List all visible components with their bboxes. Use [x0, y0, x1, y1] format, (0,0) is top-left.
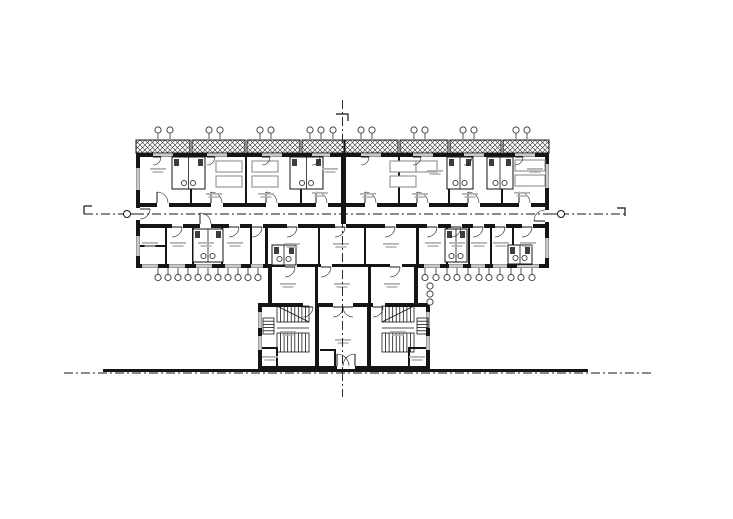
window	[471, 264, 485, 268]
room-label-mark	[262, 356, 278, 361]
vent-symbol	[427, 283, 433, 289]
vent-symbol	[529, 268, 535, 281]
door-opening	[157, 203, 169, 207]
vent-symbol	[454, 268, 460, 281]
window	[251, 264, 263, 268]
door-swing	[385, 227, 395, 237]
datum-circle	[558, 211, 565, 218]
wall	[367, 303, 371, 366]
window	[515, 153, 535, 157]
room-label-mark	[280, 283, 296, 288]
bed	[252, 161, 278, 172]
wall	[416, 228, 419, 264]
stair-flight	[263, 318, 274, 334]
vent-symbol	[427, 291, 433, 297]
room-label-mark	[334, 283, 350, 288]
fixture	[525, 247, 530, 254]
door-swing	[285, 267, 295, 277]
door-swing	[153, 157, 161, 165]
datum-circle	[124, 211, 131, 218]
bathroom-pod	[172, 157, 205, 189]
bed	[216, 176, 242, 187]
wall	[414, 264, 418, 307]
vent-symbol	[185, 268, 191, 281]
window	[169, 264, 185, 268]
vent-symbol	[444, 268, 450, 281]
centerline-bracket	[336, 114, 348, 121]
vent-symbol	[330, 127, 336, 139]
vent-symbol	[165, 268, 171, 281]
vent-symbol	[471, 127, 477, 139]
door-swing	[361, 157, 369, 165]
vent-symbol	[497, 268, 503, 281]
thin-wall-layer	[277, 306, 414, 328]
balcony-segment	[450, 140, 501, 153]
window	[493, 264, 507, 268]
vent-symbol	[318, 127, 324, 139]
window	[136, 236, 140, 256]
ground-layer	[103, 369, 588, 372]
balcony-segment	[302, 140, 344, 153]
wall	[368, 264, 371, 306]
fixture	[466, 159, 471, 166]
vent-symbol	[460, 127, 466, 139]
balcony-segment	[345, 140, 398, 153]
vent-symbol	[369, 127, 375, 139]
fixture	[195, 231, 200, 238]
window	[136, 168, 140, 190]
door-swing	[333, 307, 343, 317]
window	[258, 336, 262, 350]
room-label-mark	[170, 242, 186, 247]
door-opening	[200, 224, 211, 228]
door-opening	[468, 203, 480, 207]
wall	[165, 228, 167, 264]
fixture	[292, 159, 297, 166]
vent-symbol	[206, 127, 212, 139]
fixture	[216, 231, 221, 238]
furniture-layer	[172, 157, 545, 265]
door-opening	[417, 203, 429, 207]
vent-symbol	[255, 268, 261, 281]
door-swing	[473, 227, 483, 237]
wall	[265, 228, 268, 264]
vent-symbol	[518, 268, 524, 281]
window	[424, 264, 440, 268]
window	[258, 312, 262, 328]
room-label-mark	[335, 339, 351, 344]
door-swing	[303, 307, 313, 317]
vent-symbol	[508, 268, 514, 281]
bed	[252, 176, 278, 187]
stair-layer	[263, 306, 428, 352]
window	[312, 153, 330, 157]
room-label-mark	[206, 193, 222, 198]
fixture	[510, 247, 515, 254]
window	[545, 238, 549, 258]
fixture	[460, 231, 465, 238]
bed	[515, 175, 545, 186]
ground-line	[103, 369, 588, 372]
door-swing	[252, 227, 262, 237]
room-label-mark	[360, 193, 376, 198]
fixture	[506, 159, 511, 166]
fixture	[174, 159, 179, 166]
plan-svg	[0, 0, 733, 519]
window	[464, 153, 484, 157]
door-swing	[321, 267, 331, 277]
balcony-segment	[247, 140, 300, 153]
door-opening	[545, 210, 549, 222]
vent-symbol	[217, 127, 223, 139]
room-label-mark	[493, 242, 509, 247]
bed	[390, 176, 416, 187]
window	[225, 264, 241, 268]
window	[153, 153, 173, 157]
door-swing	[373, 307, 383, 317]
vent-symbol	[245, 268, 251, 281]
bathroom-pod	[447, 157, 473, 189]
door-swing	[390, 267, 400, 277]
centerline-bracket	[617, 208, 625, 216]
room-label-mark	[471, 242, 487, 247]
room-label-mark	[412, 193, 428, 198]
window	[449, 264, 463, 268]
room-label-mark	[312, 192, 328, 197]
vent-symbol	[422, 268, 428, 281]
stair-flight	[277, 333, 309, 352]
vent-symbol	[167, 127, 173, 139]
vent-symbol	[257, 127, 263, 139]
door-swing	[522, 227, 532, 237]
balcony-segment	[192, 140, 245, 153]
fixture	[289, 247, 294, 254]
vent-symbol	[225, 268, 231, 281]
bed	[390, 161, 416, 172]
vent-symbol	[358, 127, 364, 139]
wall	[468, 228, 470, 264]
fixture	[198, 159, 203, 166]
vent-symbol	[215, 268, 221, 281]
vent-symbol	[205, 268, 211, 281]
bed	[216, 161, 242, 172]
vent-symbol	[422, 127, 428, 139]
vent-symbol	[268, 127, 274, 139]
fixture	[274, 247, 279, 254]
vent-symbol	[433, 268, 439, 281]
wall	[490, 228, 492, 264]
vent-symbol	[513, 127, 519, 139]
window	[142, 264, 158, 268]
window	[262, 153, 282, 157]
door-opening	[365, 203, 377, 207]
wall	[268, 264, 272, 307]
bathroom-pod	[272, 245, 296, 265]
door-swing	[495, 227, 505, 237]
wall	[245, 157, 247, 203]
vent-symbol	[235, 268, 241, 281]
vent-symbol	[307, 127, 313, 139]
thin-wall	[277, 306, 309, 322]
wall	[250, 228, 252, 264]
vent-symbol	[155, 268, 161, 281]
fixture	[489, 159, 494, 166]
door-swing	[534, 210, 545, 221]
door-swing	[229, 227, 239, 237]
door-swing	[427, 227, 437, 237]
door-swing	[172, 227, 182, 237]
wall	[334, 349, 336, 366]
door-swing	[207, 157, 215, 165]
wall	[320, 349, 336, 351]
vent-symbol	[155, 127, 161, 139]
window	[413, 153, 433, 157]
window	[426, 336, 430, 350]
vent-symbol	[427, 299, 433, 305]
thin-wall	[382, 306, 414, 322]
door-swing	[335, 227, 345, 237]
window	[517, 264, 539, 268]
room-label-mark	[333, 243, 349, 248]
wall	[315, 303, 319, 366]
wall	[315, 264, 318, 306]
bathroom-pod	[487, 157, 513, 189]
balcony-segment	[503, 140, 549, 153]
window	[545, 164, 549, 188]
wall	[364, 228, 366, 264]
room-label-mark	[322, 168, 338, 173]
door-swing	[343, 307, 353, 317]
vent-symbol	[411, 127, 417, 139]
vent-symbol	[465, 268, 471, 281]
vent-symbol	[476, 268, 482, 281]
wall	[262, 347, 278, 349]
balcony-segment	[400, 140, 448, 153]
door-swing	[157, 192, 168, 203]
vent-symbol	[175, 268, 181, 281]
vent-symbol	[486, 268, 492, 281]
room-label-mark	[409, 356, 425, 361]
vent-symbol	[524, 127, 530, 139]
bathroom-pod	[508, 245, 532, 264]
room-label-mark	[227, 242, 243, 247]
floor-plan-page	[0, 0, 733, 519]
window	[361, 153, 381, 157]
room-label-mark	[150, 168, 166, 173]
door-opening	[519, 203, 531, 207]
wall	[318, 228, 320, 264]
vent-symbol	[195, 268, 201, 281]
door-opening	[316, 203, 328, 207]
door-opening	[266, 203, 278, 207]
wall	[341, 153, 346, 228]
window	[196, 264, 212, 268]
fixture	[316, 159, 321, 166]
room-label-mark	[384, 283, 400, 288]
room-label-mark	[425, 242, 441, 247]
door-opening	[211, 203, 223, 207]
fixture	[449, 159, 454, 166]
door-swing	[287, 227, 297, 237]
room-label-mark	[383, 243, 399, 248]
balcony-segment	[136, 140, 190, 153]
door-swing	[200, 213, 211, 224]
window	[207, 153, 227, 157]
